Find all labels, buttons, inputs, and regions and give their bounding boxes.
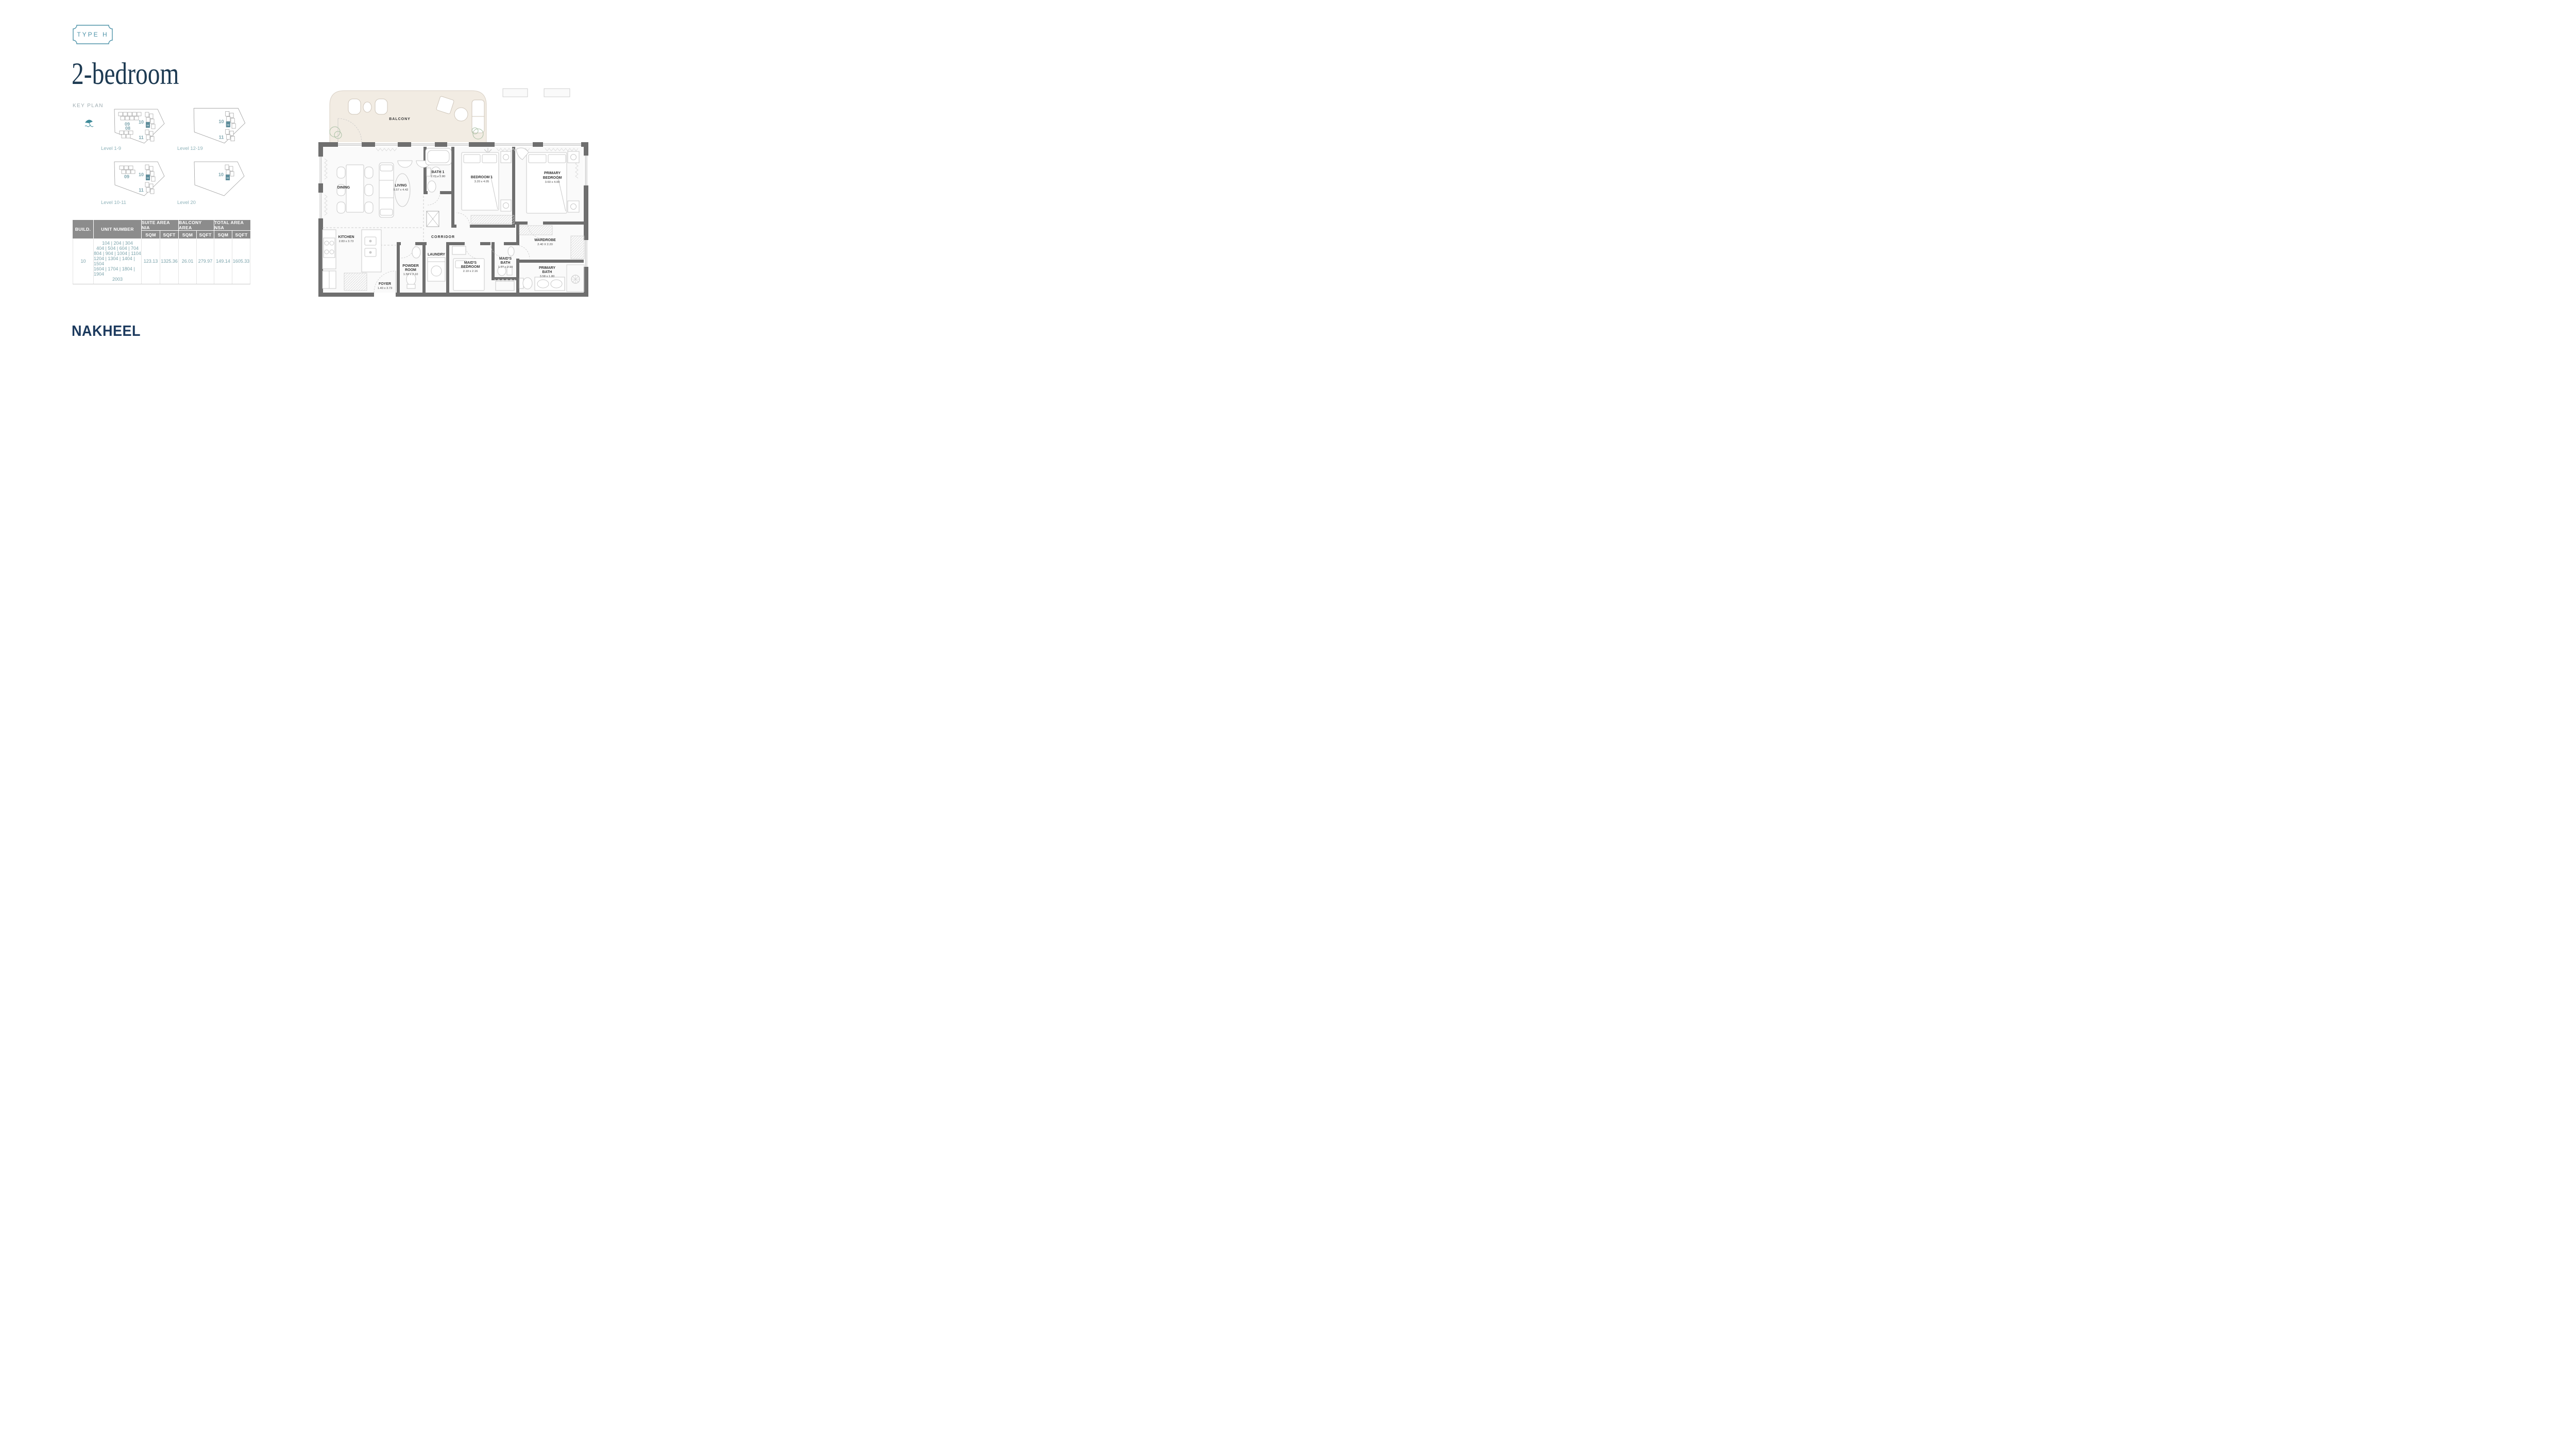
powder-dims: 1.50 x 2.10 bbox=[403, 273, 418, 276]
total-sqm-header: SQM bbox=[214, 231, 232, 238]
suite-sqm-cell: 123.13 bbox=[142, 238, 160, 284]
maid-bath-label-1: MAID'S bbox=[499, 257, 512, 261]
maid-bath-label-2: BATH bbox=[501, 261, 511, 265]
col-unit-header: UNIT NUMBER bbox=[94, 220, 142, 238]
level-label-3: Level 10-11 bbox=[101, 200, 126, 206]
floorplan: BALCONY DINING LIVING 5.57 x 4.42 BATH 1… bbox=[314, 88, 590, 297]
unit-line: 404 | 504 | 604 | 704 bbox=[96, 246, 139, 251]
unit-line: 1204 | 1304 | 1404 | 1504 bbox=[94, 256, 141, 266]
building-11-cluster bbox=[226, 129, 234, 141]
balcony-sqm-cell: 26.01 bbox=[179, 238, 197, 284]
level-label-2: Level 12-19 bbox=[177, 146, 203, 151]
bedroom1-dims: 3.20 x 4.05 bbox=[474, 180, 489, 183]
balcony-label: BALCONY bbox=[389, 117, 411, 121]
building-11-number: 11 bbox=[139, 135, 144, 140]
laundry-washer bbox=[428, 258, 445, 281]
total-sqft-header: SQFT bbox=[232, 231, 250, 238]
total-sqm-cell: 149.14 bbox=[214, 238, 232, 284]
highlighted-unit-label: 04 bbox=[227, 124, 230, 126]
corridor-label: CORRIDOR bbox=[431, 235, 455, 239]
highlighted-unit-label: 03 bbox=[227, 177, 229, 179]
group-balcony-header: BALCONY AREA bbox=[179, 220, 214, 231]
keyplan-level-20: 03 10 bbox=[170, 159, 251, 199]
unit-line: 1604 | 1704 | 1804 | 1904 bbox=[94, 266, 141, 277]
page-title: 2-bedroom bbox=[72, 56, 179, 91]
level-label-4: Level 20 bbox=[177, 200, 196, 206]
primary-bath-label-2: BATH bbox=[543, 270, 552, 274]
building-08-number: 08 bbox=[125, 126, 130, 131]
k itchen-dims: 2.83 x 3.73 bbox=[339, 240, 354, 243]
unit-line: 104 | 204 | 304 bbox=[102, 241, 133, 246]
level-label-1: Level 1-9 bbox=[101, 146, 121, 151]
suite-sqft-header: SQFT bbox=[160, 231, 179, 238]
type-badge: TYPE H bbox=[73, 25, 113, 44]
total-sqft-cell: 1605.33 bbox=[232, 238, 250, 284]
primary-bath-label-1: PRIMARY bbox=[539, 266, 555, 270]
highlighted-unit-label: 04 bbox=[147, 177, 149, 179]
dining-label: DINING bbox=[337, 186, 350, 190]
planter-box bbox=[503, 89, 528, 97]
primary-bath-dims: 3.58 x 1.80 bbox=[540, 275, 555, 278]
primary-bedroom-dims: 3.60 x 4.00 bbox=[545, 181, 560, 184]
keyplan-level-10-11: 09 04 10 11 bbox=[92, 159, 170, 199]
building-11-number: 11 bbox=[219, 135, 224, 140]
unit-line: 2003 bbox=[112, 277, 123, 282]
kitchen-label: KITCHEN bbox=[338, 235, 354, 239]
foyer-label: FOYER bbox=[379, 282, 391, 286]
bath1-dims: 1.70 x 2.80 bbox=[431, 175, 446, 178]
building-10-number: 10 bbox=[218, 172, 224, 177]
maid-bedroom-label-1: MAID'S bbox=[464, 261, 477, 265]
wardrobe-label: WARDROBE bbox=[534, 238, 556, 242]
building-10-number: 10 bbox=[218, 119, 224, 124]
suite-sqft-cell: 1325.36 bbox=[160, 238, 179, 284]
laundry-label: LAUNDRY bbox=[428, 253, 445, 257]
primary-bedroom-label-1: PRIMARY bbox=[544, 172, 561, 175]
keyplan-level-1-9: 09 04 10 08 11 bbox=[92, 106, 170, 146]
living-dims: 5.57 x 4.42 bbox=[394, 189, 409, 192]
primary-bedroom-label-2: BEDROOM bbox=[543, 176, 562, 180]
bath1-label: BATH 1 bbox=[432, 171, 445, 174]
unit-line: 804 | 904 | 1004 | 1104 bbox=[94, 251, 141, 256]
balcony-sqft-header: SQFT bbox=[197, 231, 214, 238]
brochure-page: TYPE H 2-bedroom KEY PLAN 09 04 10 08 bbox=[0, 0, 644, 362]
bedroom1-label: BEDROOM 1 bbox=[471, 176, 493, 179]
highlighted-unit-label: 04 bbox=[147, 124, 149, 127]
building-11-cluster bbox=[145, 130, 154, 141]
balcony-sqft-cell: 279.97 bbox=[197, 238, 214, 284]
foyer-dims: 1.40 x 3.73 bbox=[378, 287, 393, 290]
area-table: BUILD. UNIT NUMBER SUITE AREA NIA BALCON… bbox=[73, 220, 250, 284]
col-build-header: BUILD. bbox=[73, 220, 94, 238]
balcony-sqm-header: SQM bbox=[179, 231, 197, 238]
building-10-number: 10 bbox=[139, 120, 144, 125]
building-09-number: 09 bbox=[124, 174, 129, 179]
unit-number-cell: 104 | 204 | 304 404 | 504 | 604 | 704 80… bbox=[94, 238, 142, 284]
building-11-number: 11 bbox=[139, 187, 144, 193]
shaft bbox=[427, 211, 439, 227]
living-label: LIVING bbox=[395, 184, 407, 187]
maid-bath-dims: 1.37 x 2.10 bbox=[498, 266, 513, 269]
building-11-cluster bbox=[145, 182, 154, 194]
build-cell: 10 bbox=[73, 238, 94, 284]
maid-bedroom-label-2: BEDROOM bbox=[461, 265, 480, 269]
building-10-number: 10 bbox=[139, 172, 144, 177]
wardrobe-dims: 2.40 X 2.20 bbox=[537, 243, 553, 246]
powder-label-2: ROOM bbox=[405, 268, 416, 272]
living-sofa bbox=[379, 163, 394, 217]
group-suite-header: SUITE AREA NIA bbox=[142, 220, 179, 231]
keyplan-level-12-19: 04 10 11 bbox=[170, 105, 251, 146]
suite-sqm-header: SQM bbox=[142, 231, 160, 238]
nakheel-logo: NAKHEEL bbox=[72, 323, 141, 340]
maid-bedroom-dims: 2.10 x 2.16 bbox=[463, 270, 478, 273]
balcony-area bbox=[330, 89, 570, 144]
group-total-header: TOTAL AREA NSA bbox=[214, 220, 250, 231]
table-row: 10 104 | 204 | 304 404 | 504 | 604 | 704… bbox=[73, 238, 250, 284]
type-badge-label: TYPE H bbox=[73, 25, 113, 44]
powder-label-1: POWDER bbox=[402, 264, 419, 268]
planter-box bbox=[544, 89, 570, 97]
table-header: BUILD. UNIT NUMBER SUITE AREA NIA BALCON… bbox=[73, 220, 250, 238]
